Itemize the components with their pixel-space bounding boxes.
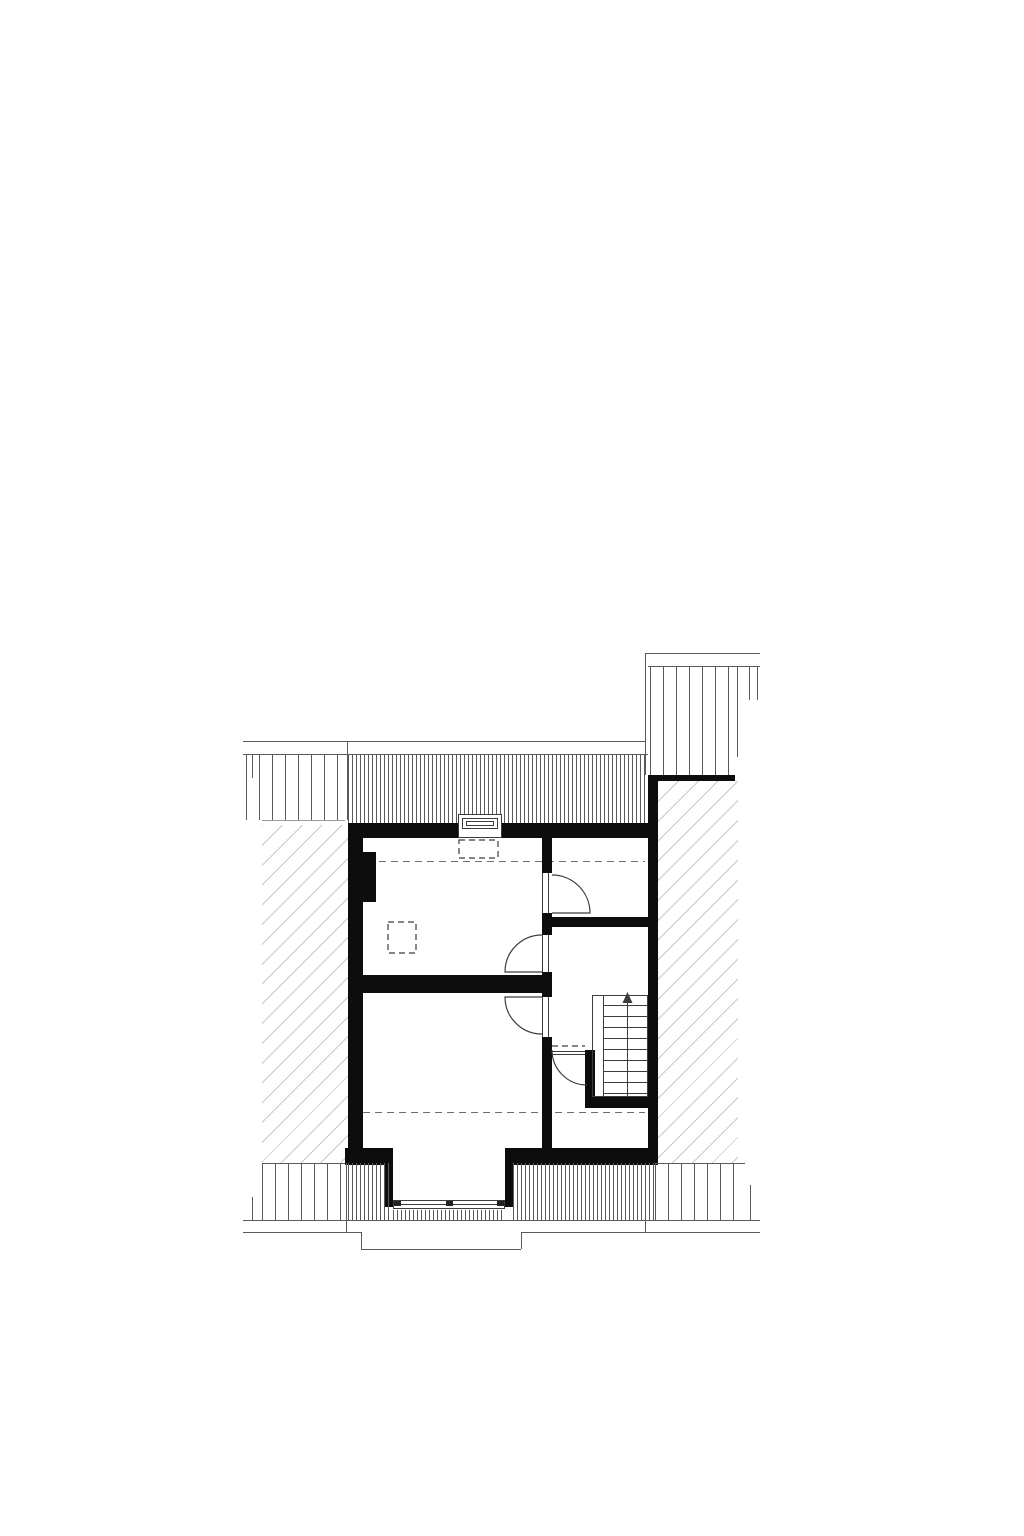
bottom-baseline [243,1220,760,1221]
door-4-swing-arc [552,1050,587,1085]
bottom-eave-tick-left [252,1197,253,1220]
wall-left [348,823,363,1165]
roof-slope-hatch-right [658,781,738,1163]
dormer-window-mullion-center [446,1201,453,1206]
staircase [593,992,649,1097]
roof-window-sash-line [466,821,494,826]
wall-right [648,775,658,1165]
roof-eave-hatch-left [246,755,347,820]
bottom-eave-tick-right [750,1185,751,1220]
dormer-window-mullion-left [394,1201,401,1206]
wall-top [348,823,658,838]
bottom-band-divider-left [346,1163,347,1232]
stair-direction-arrow-head [623,992,633,1003]
door-3-swing-arc [505,997,542,1034]
balcony-decking-hatch [650,666,730,775]
bottom-roof-hatch-left [348,1163,390,1220]
bottom-eave-hatch-left [262,1164,345,1220]
dormer-window-mullion-right [497,1201,504,1206]
wall-center-seg-4 [542,1037,552,1148]
balcony-right-tick [757,666,758,700]
balcony-left-boundary [645,653,646,775]
chimney-block [363,852,376,902]
bottom-roof-hatch-right [513,1163,655,1220]
bottom-band-divider-right [645,1163,646,1232]
stair-treads [603,1006,648,1094]
dormer-jamb-right [505,1148,513,1207]
roof-edge-line-outer [243,741,645,742]
door-1-panel-line-b [548,873,549,913]
balcony-edge-line-outer [645,653,760,654]
door-4-track-line-b [552,1054,585,1055]
ground-line-seg-3 [521,1232,760,1233]
wall-room-topright-south [542,917,658,927]
ground-line-step-up [521,1232,522,1249]
ground-line-seg-2 [361,1249,521,1250]
door-1-panel-line-a [542,873,543,913]
roof-slope-hatch-left [262,825,348,1163]
roof-eave-bottom-line [262,820,345,821]
door-3-panel-line-b [548,997,549,1037]
door-2-panel-line-a [542,935,543,972]
door-4-track-line-a [552,1051,585,1052]
stair-outline [593,996,648,1097]
roof-eave-tick-left [252,755,253,778]
wall-center-seg-1 [542,838,552,873]
ground-line-seg-1 [243,1232,361,1233]
door-1-swing-arc [552,875,590,913]
balcony-post-line-short-1 [737,666,738,757]
floor-plan-canvas [0,0,1024,1536]
ground-line-step-down [361,1232,362,1249]
ceiling-opening-dashed-box [388,922,416,953]
bottom-eave-hatch-right [655,1164,745,1220]
door-2-panel-line-b [548,935,549,972]
roof-window-dashed-projection [459,840,498,858]
door-3-panel-line-a [542,997,543,1037]
door-2-swing-arc [505,935,542,972]
wall-room-left-divider [348,975,552,993]
balcony-post-line-short-2 [749,666,750,700]
headroom-dashed-line-upper [367,861,645,862]
bottom-roof-hatch-center [393,1210,505,1220]
headroom-dashed-line-lower [363,1112,645,1113]
